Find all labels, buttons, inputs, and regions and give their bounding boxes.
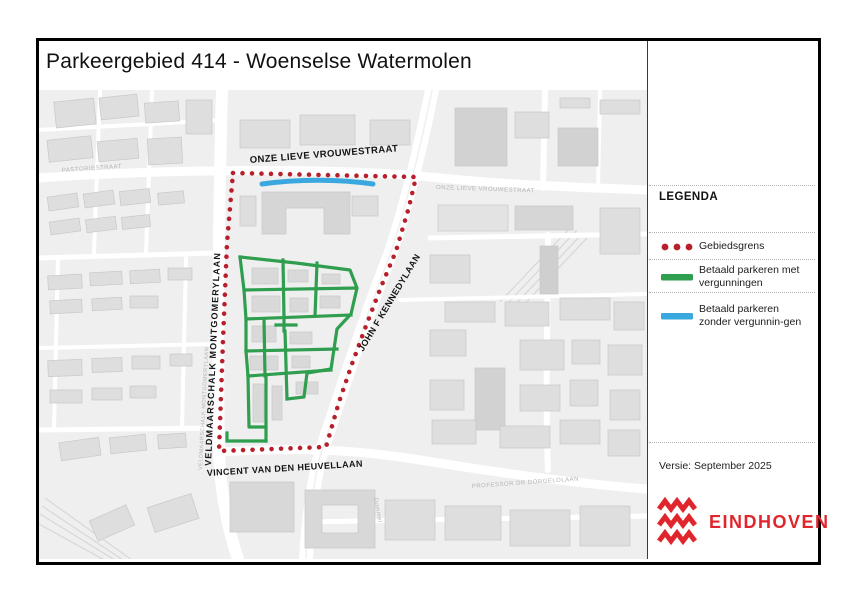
legend-divider (647, 41, 648, 559)
legend-item-label: Betaald parkeren zonder vergunnin-gen (699, 303, 807, 329)
legend-separator (649, 232, 815, 233)
page-title: Parkeergebied 414 - Woenselse Watermolen (46, 50, 472, 74)
legend-item-betaald-zonder-vergunningen: Betaald parkeren zonder vergunnin-gen (659, 294, 809, 338)
legend-separator (649, 442, 815, 443)
blue-line-icon (659, 311, 699, 321)
eindhoven-logo-mark-icon (657, 497, 701, 547)
legend-item-betaald-met-vergunningen: Betaald parkeren met vergunningen (659, 261, 809, 292)
legend-item-label: Betaald parkeren met vergunningen (699, 264, 807, 290)
legend-separator (649, 292, 815, 293)
legend-item-gebiedsgrens: Gebiedsgrens (659, 234, 809, 259)
boundary-dots-icon (659, 241, 699, 253)
parking-map-sheet: PASTORIESTRAAT ONZE LIEVE VROUWESTRAAT P… (0, 0, 850, 600)
version-text: Versie: September 2025 (659, 460, 772, 472)
legend-heading: LEGENDA (659, 191, 718, 203)
legend-item-label: Gebiedsgrens (699, 240, 807, 253)
eindhoven-wordmark: EINDHOVEN (709, 512, 830, 533)
legend-separator (649, 259, 815, 260)
legend-panel: LEGENDA Gebiedsgrens Betaald parkeren me… (649, 41, 815, 559)
green-line-icon (659, 272, 699, 282)
legend-separator (649, 185, 815, 186)
eindhoven-logo: EINDHOVEN (657, 497, 830, 547)
